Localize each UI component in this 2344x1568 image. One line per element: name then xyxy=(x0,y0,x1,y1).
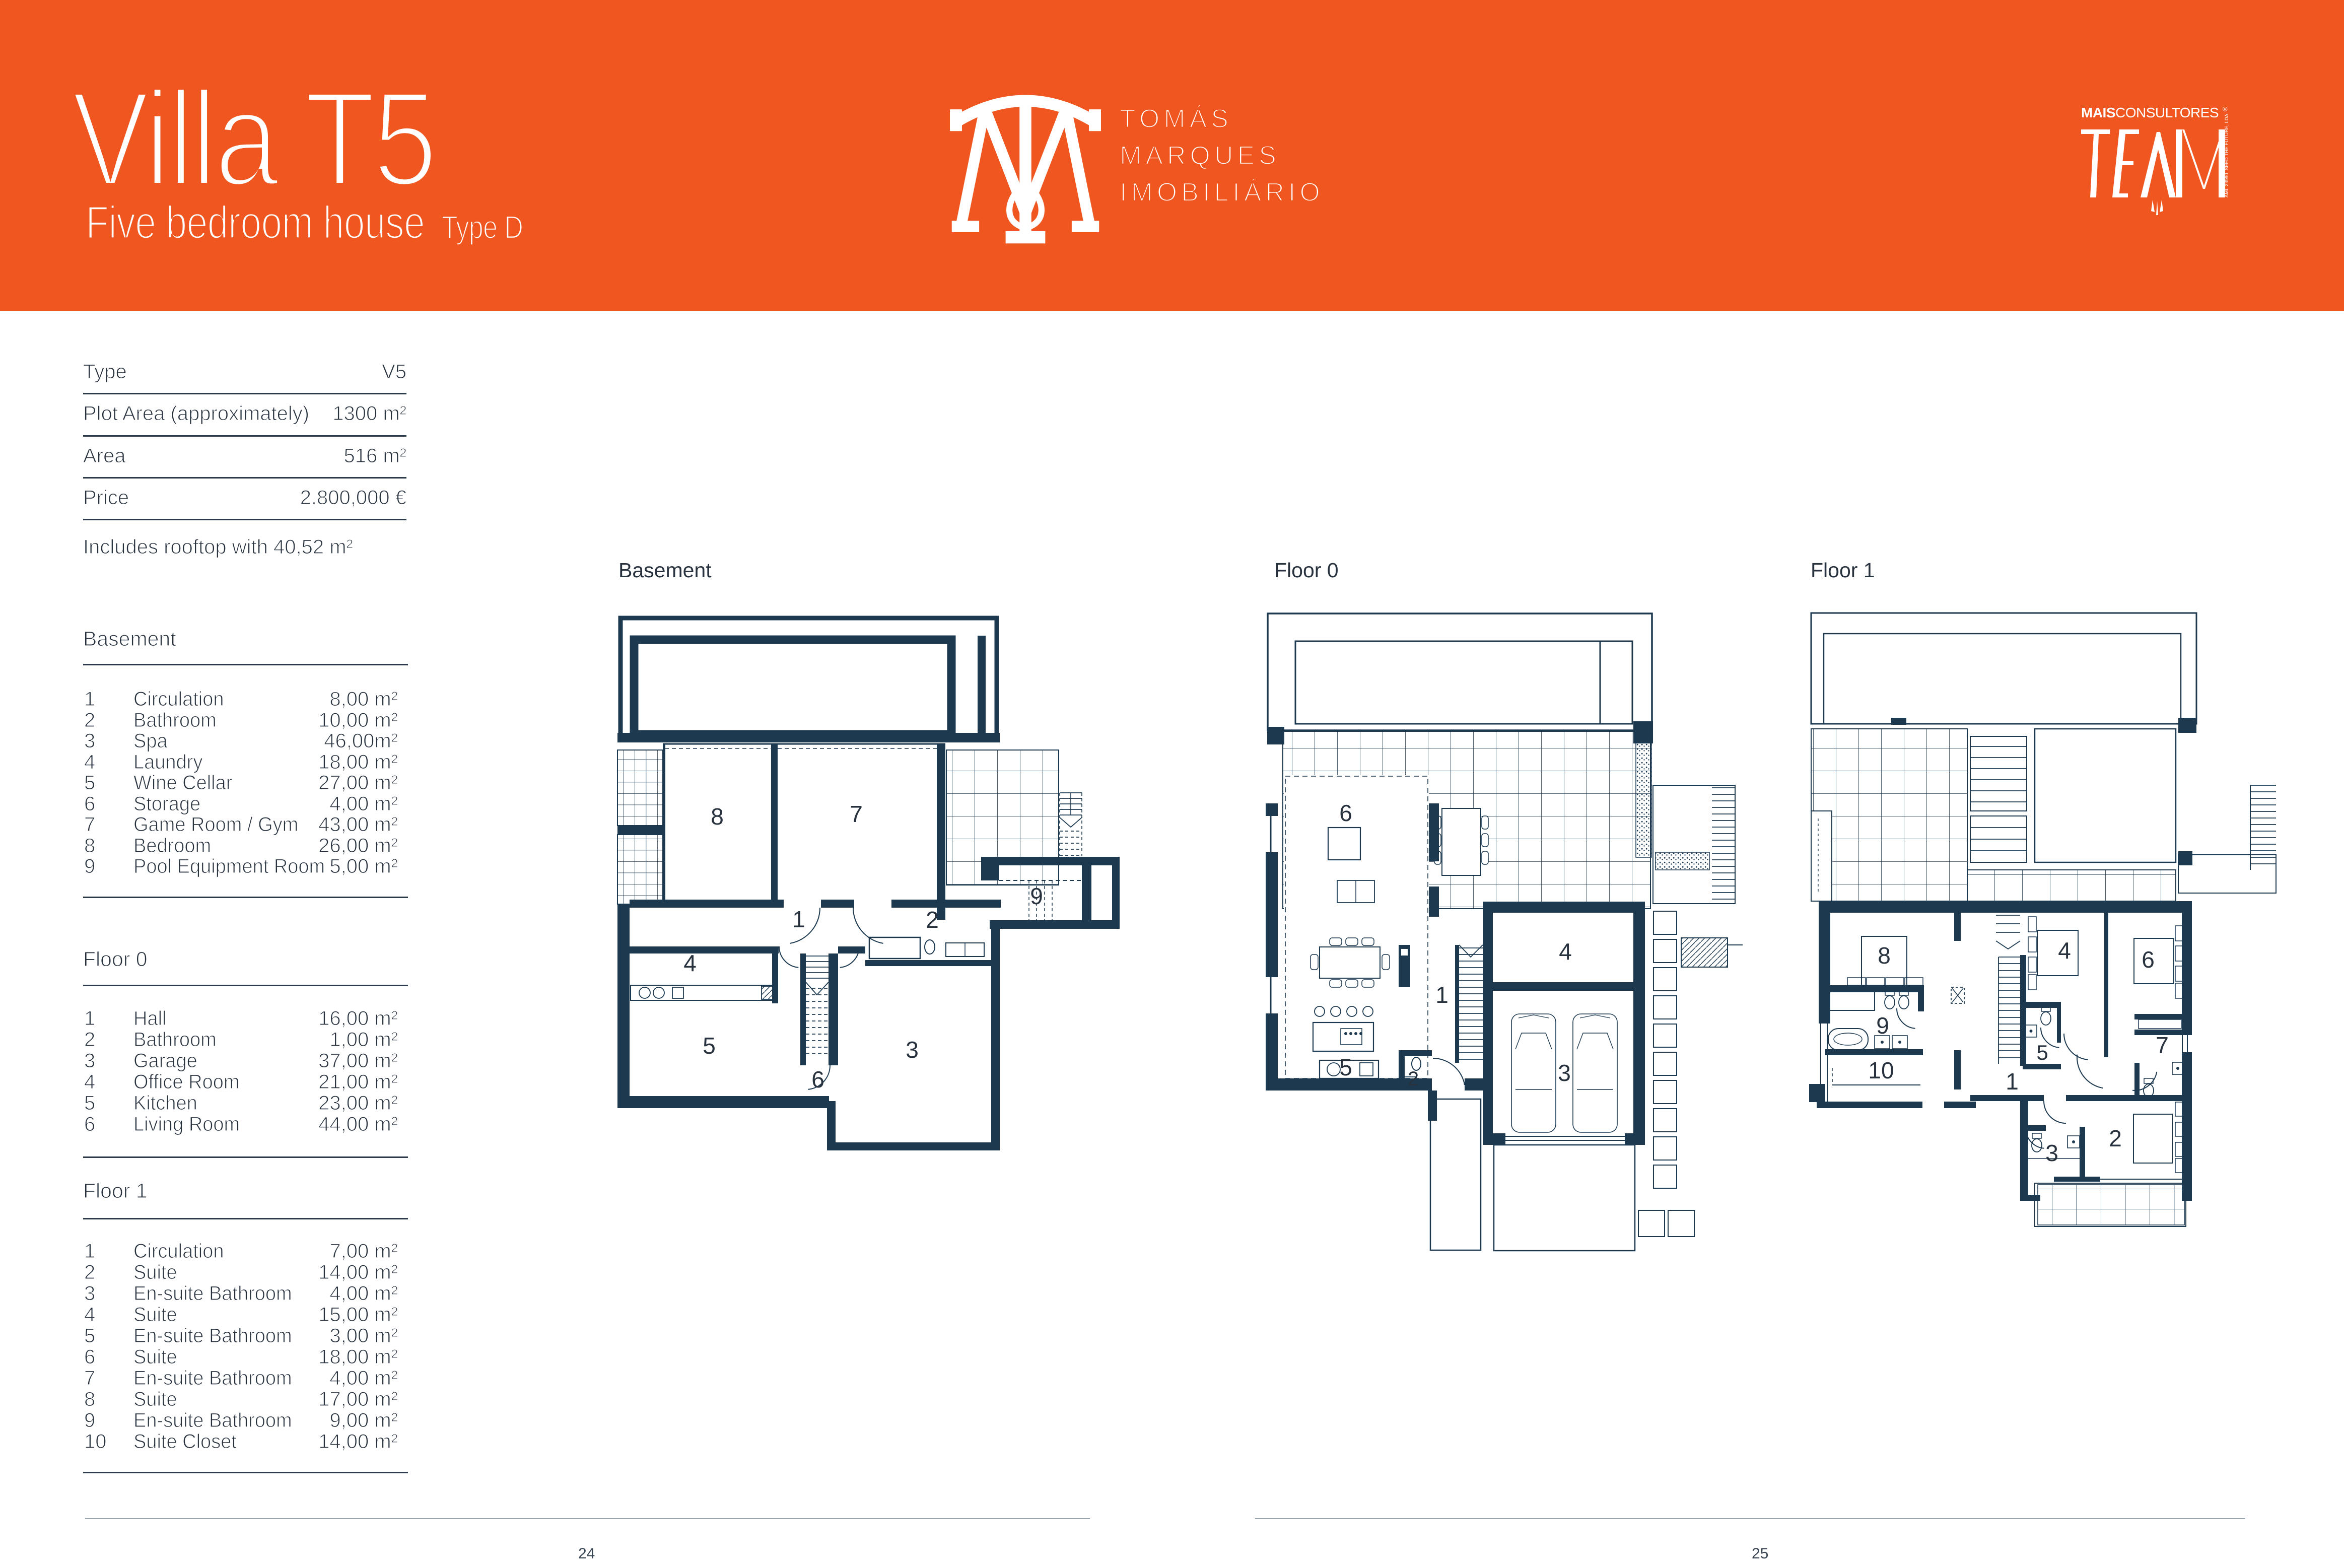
svg-text:5: 5 xyxy=(2036,1041,2048,1064)
svg-text:9: 9 xyxy=(1876,1012,1889,1039)
svg-text:6: 6 xyxy=(811,1066,824,1093)
svg-text:3: 3 xyxy=(2045,1140,2058,1166)
svg-text:3: 3 xyxy=(1558,1060,1571,1086)
svg-text:10: 10 xyxy=(1868,1057,1894,1083)
svg-text:Floor 1: Floor 1 xyxy=(1811,559,1875,582)
svg-text:3: 3 xyxy=(906,1037,919,1063)
svg-text:5: 5 xyxy=(1339,1054,1352,1080)
svg-text:7: 7 xyxy=(850,801,863,827)
svg-text:6: 6 xyxy=(1339,800,1352,826)
svg-text:4: 4 xyxy=(1559,938,1572,965)
svg-text:9: 9 xyxy=(1030,883,1043,909)
svg-text:4: 4 xyxy=(683,950,697,976)
svg-text:5: 5 xyxy=(703,1033,716,1059)
svg-text:8: 8 xyxy=(711,803,724,830)
svg-text:4: 4 xyxy=(2058,937,2071,964)
svg-text:Basement: Basement xyxy=(618,559,712,582)
svg-text:1: 1 xyxy=(2006,1068,2019,1095)
svg-text:2: 2 xyxy=(926,907,939,933)
svg-text:8: 8 xyxy=(1878,942,1891,969)
svg-text:6: 6 xyxy=(2142,946,2155,973)
svg-text:1: 1 xyxy=(1435,982,1449,1008)
svg-text:7: 7 xyxy=(2156,1032,2169,1058)
svg-text:1: 1 xyxy=(792,906,805,932)
svg-text:Floor 0: Floor 0 xyxy=(1274,559,1339,582)
svg-text:2: 2 xyxy=(1408,1068,1419,1090)
svg-text:2: 2 xyxy=(2109,1125,2122,1151)
